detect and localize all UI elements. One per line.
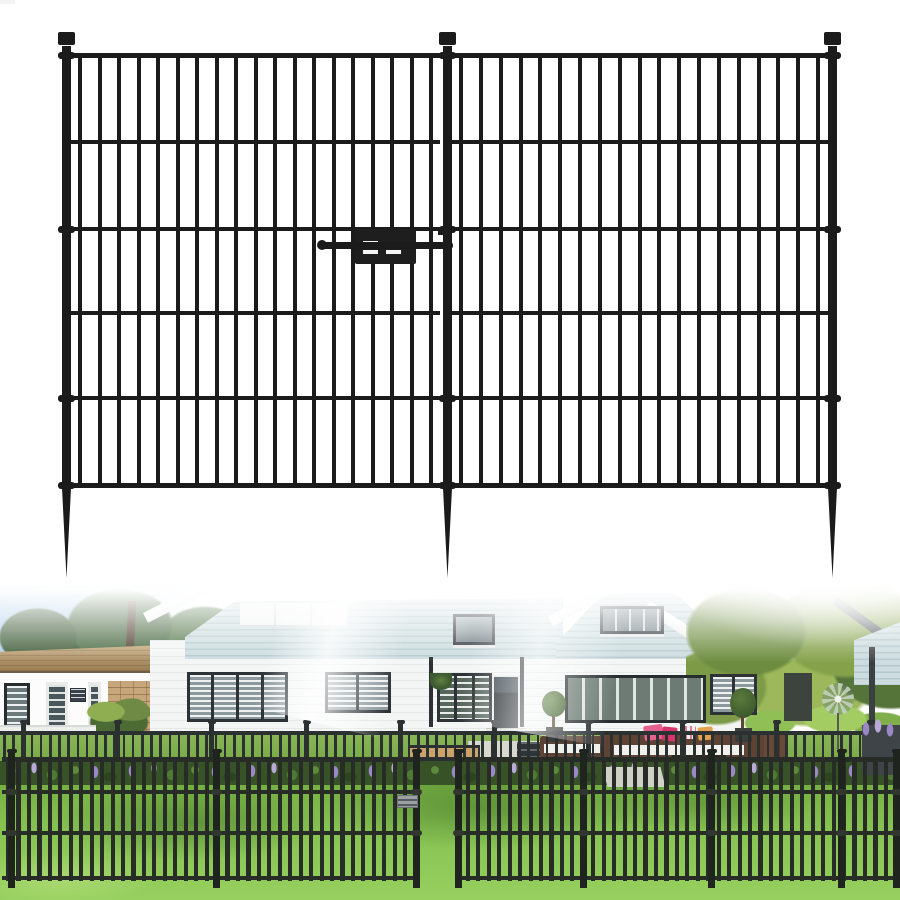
fence-bar [69,757,73,881]
fence-bar [257,757,261,881]
fence-bar [236,757,240,881]
fence-bar [811,757,815,881]
fence-bar [769,757,773,881]
fence-rail-clamp [453,789,464,795]
latch-slot [363,250,378,254]
fence-bar [361,757,365,881]
fence-rail-clamp [211,789,222,795]
fence-bar [664,757,668,881]
fence-bar [121,757,125,881]
fence-post-cap [579,749,589,753]
fence-bar [111,757,115,881]
fence-bar [539,757,543,881]
fence-bar [821,757,825,881]
fence-bar [696,757,700,881]
fence-bar [288,757,292,881]
fence-bar [299,757,303,881]
fence-bar [633,757,637,881]
fence-bar [654,757,658,881]
fence-rail-clamp [6,830,17,836]
fence-bar [570,757,574,881]
gate-product-figure [0,0,900,585]
fence-bar [602,757,606,881]
latch-handle-knob [317,240,327,250]
latch-catch-hook [447,231,451,248]
fence-bar [142,757,146,881]
fence-bar [403,757,407,881]
fence-bar [738,757,742,881]
fence-post [213,752,220,888]
fence-bar [225,757,229,881]
fence-post [455,752,462,888]
fence-post-cap [7,749,17,753]
fence-post [893,752,900,888]
fence-bar [549,757,553,881]
fence-bar [278,757,282,881]
fence-post [413,752,420,888]
fence-bar [320,757,324,881]
fence-bar [27,757,31,881]
fence-bar [832,757,836,881]
fence-gate-latch-plate [397,795,418,808]
fence-bar [623,757,627,881]
fence-rail-clamp [6,789,17,795]
fence-bar [16,757,20,881]
fence-rail-clamp [891,830,900,836]
fence-bar [612,757,616,881]
fence-bar [591,757,595,881]
fence-bar [184,757,188,881]
fence-rail-clamp [706,789,717,795]
fence-bar [152,757,156,881]
fence-post-cap [707,749,717,753]
fence-bar [717,757,721,881]
fence-post [838,752,845,888]
fence-post-cap [892,749,900,753]
fence-rail-clamp [453,830,464,836]
fence-bar [758,757,762,881]
fence-bar [748,757,752,881]
fence-post-cap [212,749,222,753]
fence-bar [246,757,250,881]
installed-yard-photo [0,585,900,900]
fence-bar [779,757,783,881]
fence-bar [790,757,794,881]
fence-bar [309,757,313,881]
fence-bar [58,757,62,881]
fence-bar [79,757,83,881]
fence-bar [476,757,480,881]
fence-bar [685,757,689,881]
fence-post [708,752,715,888]
fence-rail-clamp [211,830,222,836]
latch-slot [0,0,15,4]
fence-bar [643,757,647,881]
fence-bar [340,757,344,881]
fence-bar [497,757,501,881]
fence-rail-clamp [411,830,422,836]
fence-bar [393,757,397,881]
fence-bar [48,757,52,881]
latch-assembly [0,0,900,585]
fence-post-cap [412,749,422,753]
fence-bar [131,757,135,881]
fence-rail-clamp [578,830,589,836]
fence-bar [382,757,386,881]
fence-bar [90,757,94,881]
fence-bar [205,757,209,881]
fence-bar [173,757,177,881]
fence-post [8,752,15,888]
photo-right-fade [640,585,900,685]
fence-bar [529,757,533,881]
fence-bar [508,757,512,881]
fence-bar [863,757,867,881]
fence-bar [727,757,731,881]
fence-bar [351,757,355,881]
fence-rail-clamp [836,830,847,836]
latch-slot [386,250,401,254]
fence-rail-clamp [891,789,900,795]
fence-bar [466,757,470,881]
fence-bar [372,757,376,881]
fence-post-cap [454,749,464,753]
fence-bar [37,757,41,881]
fence-bar [560,757,564,881]
fence-bar [267,757,271,881]
fence-bar [852,757,856,881]
fence-post [580,752,587,888]
fence-rail-clamp [706,830,717,836]
fence-bar [800,757,804,881]
fence-post-cap [837,749,847,753]
fence-rail-clamp [578,789,589,795]
sunbeam [457,585,633,747]
fence-rail-clamp [836,789,847,795]
fence-bar [518,757,522,881]
fence-bar [194,757,198,881]
fence-bar [330,757,334,881]
latch-slide-bar [322,242,453,249]
product-image [0,0,900,900]
fence-bar [163,757,167,881]
fence-bar [675,757,679,881]
fence-bar [884,757,888,881]
fence-bar [100,757,104,881]
fence-bar [873,757,877,881]
fence-bar [487,757,491,881]
